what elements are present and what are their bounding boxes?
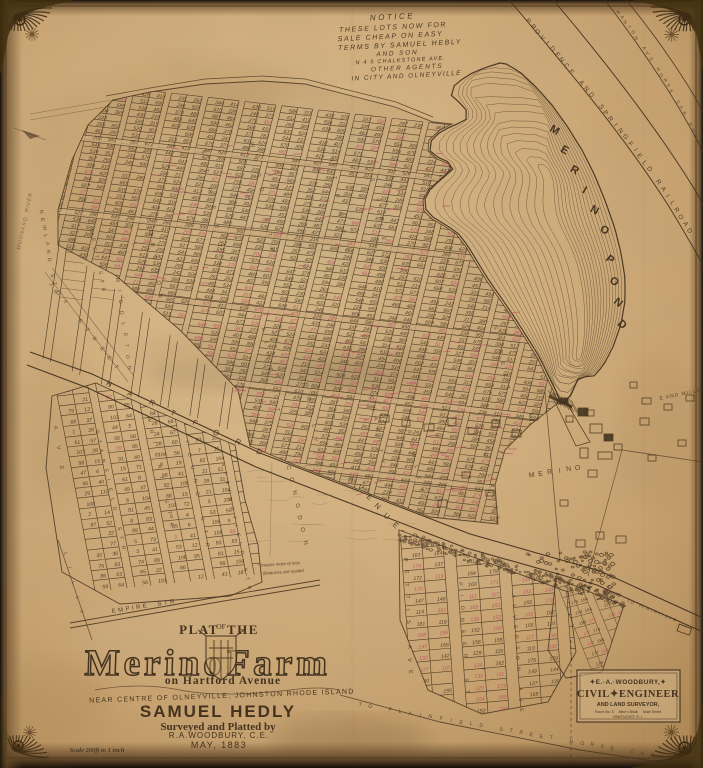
svg-text:61: 61 xyxy=(74,440,81,447)
svg-text:152: 152 xyxy=(471,627,480,634)
svg-text:117: 117 xyxy=(491,592,501,599)
svg-text:PLAT: PLAT xyxy=(179,622,219,637)
svg-text:22: 22 xyxy=(155,567,163,574)
svg-text:V: V xyxy=(406,658,412,662)
svg-text:144: 144 xyxy=(550,667,559,674)
svg-text:166: 166 xyxy=(440,642,449,649)
svg-text:153: 153 xyxy=(491,603,500,610)
svg-text:172: 172 xyxy=(413,575,422,582)
svg-text:AND LAND SURVEYOR,: AND LAND SURVEYOR, xyxy=(597,702,660,708)
svg-text:142: 142 xyxy=(441,653,450,660)
svg-text:109: 109 xyxy=(235,559,245,566)
svg-text:153: 153 xyxy=(492,615,501,622)
svg-text:106: 106 xyxy=(211,519,221,526)
svg-text:R.A.WOODBURY, C.E.: R.A.WOODBURY, C.E. xyxy=(169,731,269,740)
svg-text:81: 81 xyxy=(217,551,224,558)
svg-text:180: 180 xyxy=(498,694,507,701)
svg-text:63: 63 xyxy=(116,572,123,579)
svg-text:101: 101 xyxy=(158,578,168,585)
svg-text:21: 21 xyxy=(81,397,89,404)
svg-text:81: 81 xyxy=(128,507,135,514)
svg-text:146: 146 xyxy=(437,596,446,603)
svg-text:S: S xyxy=(405,620,411,624)
svg-text:13: 13 xyxy=(84,407,91,414)
svg-text:Scale 200ft to 1 inch: Scale 200ft to 1 inch xyxy=(70,747,125,754)
svg-text:76: 76 xyxy=(98,563,105,570)
svg-text:A: A xyxy=(406,645,412,649)
svg-text:104: 104 xyxy=(215,456,225,463)
svg-text:N: N xyxy=(566,466,572,474)
svg-text:59: 59 xyxy=(116,445,123,452)
svg-text:103: 103 xyxy=(167,503,177,510)
svg-text:THE: THE xyxy=(227,622,259,637)
svg-text:110: 110 xyxy=(442,665,451,672)
svg-text:59: 59 xyxy=(102,584,109,591)
svg-text:41: 41 xyxy=(221,572,228,579)
svg-text:O: O xyxy=(124,354,131,359)
svg-text:152: 152 xyxy=(522,589,531,596)
svg-text:OF: OF xyxy=(216,622,226,631)
svg-text:T: T xyxy=(464,690,470,693)
svg-text:83: 83 xyxy=(146,516,153,523)
svg-text:91: 91 xyxy=(118,456,125,463)
svg-text:83: 83 xyxy=(215,540,222,547)
svg-text:64: 64 xyxy=(118,582,125,589)
svg-text:164: 164 xyxy=(467,571,476,578)
svg-text:147: 147 xyxy=(415,598,425,605)
svg-text:168: 168 xyxy=(417,632,426,639)
svg-text:56: 56 xyxy=(142,580,149,587)
svg-text:44: 44 xyxy=(148,526,155,533)
svg-text:SAMUEL HEDLY: SAMUEL HEDLY xyxy=(140,702,296,721)
svg-text:149: 149 xyxy=(528,669,537,676)
svg-text:165: 165 xyxy=(530,692,539,699)
svg-text:108: 108 xyxy=(178,555,188,562)
svg-text:85: 85 xyxy=(132,444,139,451)
svg-text:M: M xyxy=(114,277,121,282)
svg-text:41: 41 xyxy=(152,547,159,554)
svg-text:58: 58 xyxy=(130,434,137,441)
svg-text:105: 105 xyxy=(213,530,223,537)
svg-text:113: 113 xyxy=(526,646,535,653)
svg-text:111: 111 xyxy=(469,594,477,601)
svg-text:174: 174 xyxy=(412,563,421,570)
svg-text:134: 134 xyxy=(473,662,482,669)
svg-text:129: 129 xyxy=(475,685,484,692)
svg-text:40: 40 xyxy=(134,455,141,462)
svg-text:31: 31 xyxy=(201,468,208,475)
svg-text:CIVIL✦ENGINEER: CIVIL✦ENGINEER xyxy=(577,688,679,700)
svg-text:44: 44 xyxy=(112,425,119,432)
svg-text:65: 65 xyxy=(140,569,147,576)
svg-text:45: 45 xyxy=(144,506,151,513)
svg-text:29: 29 xyxy=(83,491,91,498)
svg-text:O: O xyxy=(459,606,465,610)
svg-text:119: 119 xyxy=(435,573,444,580)
svg-text:167: 167 xyxy=(546,610,556,617)
svg-text:39: 39 xyxy=(203,478,210,485)
svg-text:15: 15 xyxy=(181,492,188,499)
svg-text:179: 179 xyxy=(489,569,498,576)
svg-text:95: 95 xyxy=(193,553,200,560)
svg-text:171: 171 xyxy=(490,580,499,587)
svg-text:108: 108 xyxy=(86,501,96,508)
svg-text:181: 181 xyxy=(416,621,425,628)
svg-text:50: 50 xyxy=(82,481,89,488)
svg-text:117: 117 xyxy=(526,635,536,642)
svg-text:127: 127 xyxy=(529,681,539,688)
svg-text:12: 12 xyxy=(191,543,198,550)
svg-text:104: 104 xyxy=(142,495,152,502)
svg-text:on Hartford Avenue: on Hartford Avenue xyxy=(165,675,281,687)
svg-text:64: 64 xyxy=(126,413,133,420)
svg-text:147: 147 xyxy=(418,644,428,651)
svg-text:170: 170 xyxy=(414,586,423,593)
svg-text:30: 30 xyxy=(96,553,103,560)
svg-text:79: 79 xyxy=(68,408,75,415)
svg-text:89: 89 xyxy=(154,558,161,565)
svg-text:12: 12 xyxy=(197,574,204,581)
svg-text:106: 106 xyxy=(179,480,189,487)
svg-text:137: 137 xyxy=(434,561,444,568)
svg-text:102: 102 xyxy=(110,415,120,422)
svg-text:164: 164 xyxy=(476,696,485,703)
svg-text:119: 119 xyxy=(438,619,447,626)
svg-text:82: 82 xyxy=(199,458,206,465)
svg-text:160: 160 xyxy=(468,582,477,589)
svg-text:15: 15 xyxy=(120,466,127,473)
svg-text:89: 89 xyxy=(132,528,139,535)
svg-text:60: 60 xyxy=(171,440,178,447)
svg-text:139: 139 xyxy=(474,673,483,680)
svg-text:40: 40 xyxy=(98,479,105,486)
svg-text:163: 163 xyxy=(524,612,533,619)
svg-text:56: 56 xyxy=(114,436,121,443)
svg-text:74: 74 xyxy=(138,559,145,566)
svg-text:73: 73 xyxy=(150,537,157,544)
svg-text:99: 99 xyxy=(219,561,226,568)
svg-text:82: 82 xyxy=(163,482,170,489)
svg-text:175: 175 xyxy=(527,658,536,665)
svg-text:52: 52 xyxy=(106,521,113,528)
svg-text:169: 169 xyxy=(469,605,478,612)
svg-text:155: 155 xyxy=(525,623,534,630)
svg-text:14: 14 xyxy=(104,510,111,517)
svg-text:161: 161 xyxy=(438,607,447,614)
svg-text:72: 72 xyxy=(183,501,190,508)
svg-text:E: E xyxy=(407,670,413,674)
svg-text:68: 68 xyxy=(70,419,77,426)
svg-text:155: 155 xyxy=(523,600,532,607)
svg-text:98: 98 xyxy=(78,460,85,467)
svg-text:E: E xyxy=(403,570,409,574)
svg-text:80: 80 xyxy=(108,404,115,411)
svg-text:36: 36 xyxy=(112,551,119,558)
svg-text:71: 71 xyxy=(136,464,143,471)
svg-text:162: 162 xyxy=(495,660,504,667)
svg-text:155: 155 xyxy=(443,688,452,695)
svg-text:182: 182 xyxy=(548,644,557,651)
svg-text:41: 41 xyxy=(177,471,184,478)
svg-text:86: 86 xyxy=(100,573,107,580)
svg-text:19: 19 xyxy=(175,460,182,467)
svg-text:155: 155 xyxy=(494,638,503,645)
svg-text:MAY, 1883: MAY, 1883 xyxy=(191,740,247,750)
svg-text:129: 129 xyxy=(470,617,479,624)
svg-text:168: 168 xyxy=(493,626,502,633)
svg-text:49: 49 xyxy=(124,487,131,494)
svg-text:159: 159 xyxy=(439,630,448,637)
svg-text:28: 28 xyxy=(87,427,95,434)
svg-text:120: 120 xyxy=(495,649,504,656)
svg-text:Room No. 5 Mine’s Block: Room No. 5 Mine’s Block Main Street xyxy=(595,710,661,714)
svg-text:PAWTUCKET, R. I.: PAWTUCKET, R. I. xyxy=(613,715,643,719)
svg-text:56: 56 xyxy=(173,450,180,457)
svg-text:132: 132 xyxy=(419,655,428,662)
svg-text:P: P xyxy=(402,558,408,562)
svg-text:129: 129 xyxy=(473,650,482,657)
svg-text:O: O xyxy=(514,656,520,660)
svg-text:158: 158 xyxy=(472,639,481,646)
svg-text:173: 173 xyxy=(497,683,506,690)
svg-text:✦E.·A.·WOODBURY,✦: ✦E.·A.·WOODBURY,✦ xyxy=(590,678,667,686)
svg-text:86: 86 xyxy=(179,565,186,572)
svg-text:53: 53 xyxy=(209,510,216,517)
svg-text:163: 163 xyxy=(412,552,421,559)
svg-text:21: 21 xyxy=(204,489,212,496)
svg-text:22: 22 xyxy=(107,530,115,537)
svg-text:41: 41 xyxy=(189,533,196,540)
svg-text:61: 61 xyxy=(122,477,129,484)
svg-text:83: 83 xyxy=(114,562,121,569)
svg-text:66: 66 xyxy=(167,419,174,426)
svg-text:53: 53 xyxy=(175,544,182,551)
svg-text:114: 114 xyxy=(416,609,425,616)
svg-text:143: 143 xyxy=(544,587,553,594)
svg-text:111: 111 xyxy=(496,672,504,679)
